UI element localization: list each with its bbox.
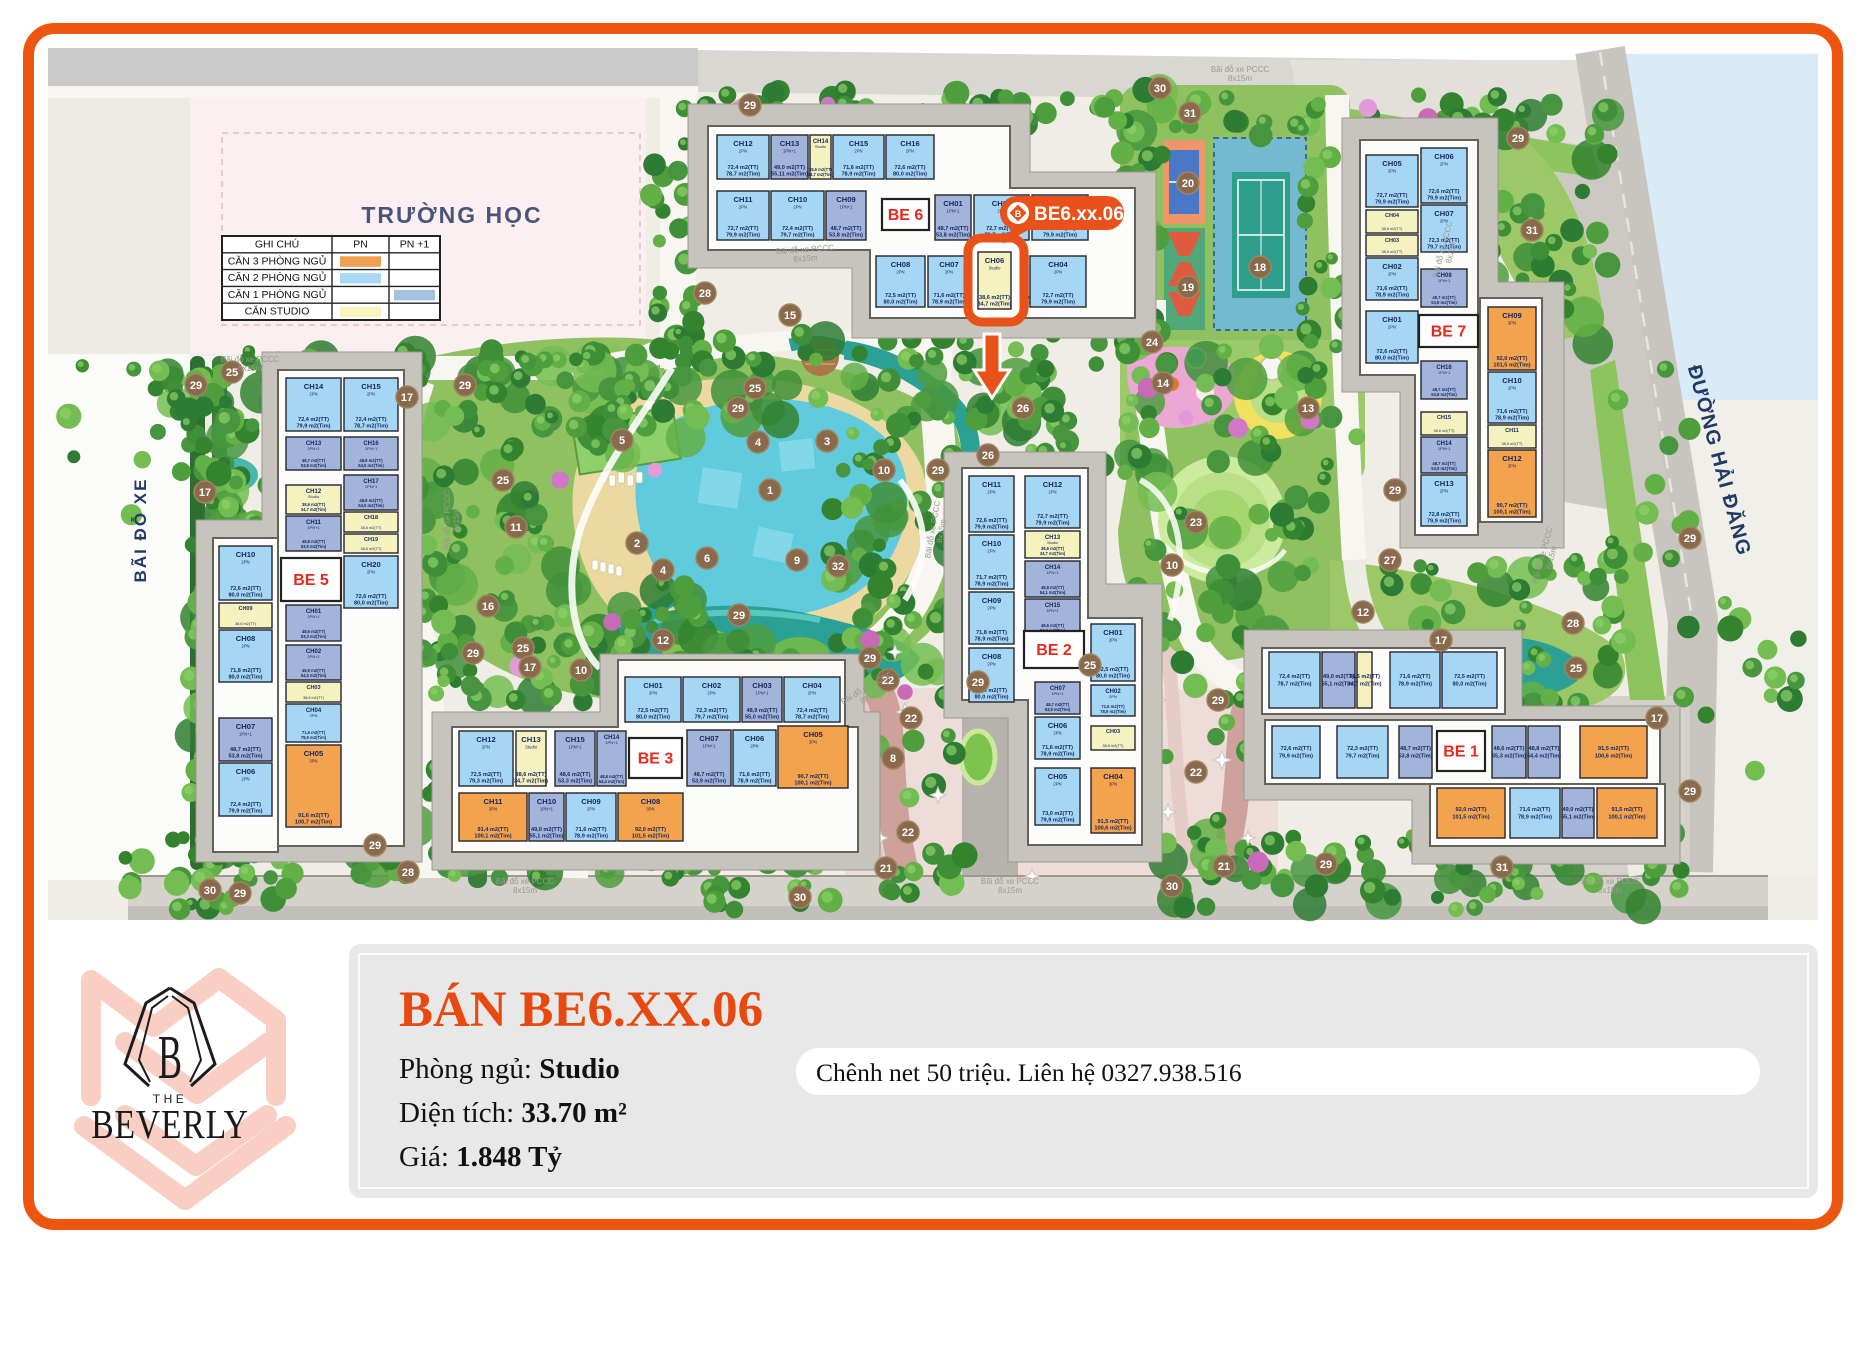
svg-text:CH13: CH13	[521, 735, 540, 744]
svg-text:79,9 m2(Tim): 79,9 m2(Tim)	[974, 525, 1008, 531]
svg-text:29: 29	[1684, 533, 1696, 545]
svg-text:29: 29	[744, 100, 756, 112]
svg-text:Bãi đỗ xe PCCC: Bãi đỗ xe PCCC	[443, 491, 452, 549]
svg-text:29: 29	[972, 677, 984, 689]
svg-text:CH12: CH12	[1502, 454, 1521, 463]
svg-text:BEVERLY: BEVERLY	[91, 1103, 248, 1148]
svg-text:100,6 m2(Tim): 100,6 m2(Tim)	[1595, 754, 1632, 760]
svg-text:72,6 m2(TT): 72,6 m2(TT)	[976, 518, 1007, 524]
svg-text:2PN: 2PN	[1109, 694, 1117, 699]
svg-text:72,4 m2(TT): 72,4 m2(TT)	[782, 226, 813, 232]
svg-text:5: 5	[619, 435, 625, 447]
svg-text:1PN+1: 1PN+1	[947, 209, 961, 214]
svg-text:92,0 m2(TT): 92,0 m2(TT)	[1496, 356, 1527, 362]
svg-text:78,9 m2(Tim): 78,9 m2(Tim)	[574, 834, 608, 840]
svg-text:PN +1: PN +1	[400, 239, 430, 251]
svg-text:80,0 m2(Tim): 80,0 m2(Tim)	[228, 593, 262, 599]
svg-text:34,7 m2(Tim): 34,7 m2(Tim)	[1040, 551, 1066, 556]
svg-text:Phòng ngủ: Studio: Phòng ngủ: Studio	[399, 1053, 620, 1085]
svg-text:34,7 m2(Tim): 34,7 m2(Tim)	[301, 507, 327, 512]
svg-text:CĂN 2 PHÒNG NGỦ: CĂN 2 PHÒNG NGỦ	[228, 271, 327, 284]
svg-text:CH05: CH05	[1382, 159, 1402, 168]
svg-text:49,0 m2(TT): 49,0 m2(TT)	[774, 165, 805, 171]
svg-text:34,7 m2(Tim): 34,7 m2(Tim)	[808, 172, 834, 177]
svg-text:2PN: 2PN	[1048, 490, 1056, 495]
svg-text:72,6 m2(TT): 72,6 m2(TT)	[230, 586, 261, 592]
svg-text:17: 17	[524, 662, 536, 674]
svg-text:2PN: 2PN	[1053, 782, 1061, 787]
svg-text:38,6 m2(TT): 38,6 m2(TT)	[1502, 442, 1524, 446]
svg-text:79,9 m2(Tim): 79,9 m2(Tim)	[1427, 519, 1461, 525]
svg-text:6: 6	[704, 553, 710, 565]
svg-text:21: 21	[1218, 861, 1230, 873]
svg-text:38,6 m2(TT): 38,6 m2(TT)	[1382, 227, 1404, 231]
svg-text:8x15m: 8x15m	[238, 364, 262, 373]
svg-text:29: 29	[1212, 695, 1224, 707]
svg-text:78,9 m2(Tim): 78,9 m2(Tim)	[1518, 815, 1552, 821]
svg-text:TRƯỜNG HỌC: TRƯỜNG HỌC	[361, 201, 542, 228]
svg-text:CH06: CH06	[1434, 152, 1453, 161]
svg-text:23: 23	[1190, 517, 1202, 529]
svg-text:72,5 m2(TT): 72,5 m2(TT)	[1454, 674, 1485, 680]
svg-text:8: 8	[890, 753, 896, 765]
svg-text:72,3 m2(TT): 72,3 m2(TT)	[696, 708, 727, 714]
svg-text:79,9 m2(Tim): 79,9 m2(Tim)	[228, 809, 262, 815]
svg-text:72,4 m2(TT): 72,4 m2(TT)	[355, 417, 386, 423]
svg-text:29: 29	[1389, 485, 1401, 497]
svg-text:71,6 m2(TT): 71,6 m2(TT)	[933, 293, 964, 299]
svg-text:29: 29	[733, 610, 745, 622]
svg-text:1PN+1: 1PN+1	[783, 149, 797, 154]
svg-text:48,6 m2(TT): 48,6 m2(TT)	[1493, 746, 1524, 752]
svg-text:38,6 m2(TT): 38,6 m2(TT)	[1349, 674, 1380, 680]
svg-text:53,3 m2(Tim): 53,3 m2(Tim)	[558, 779, 592, 785]
svg-text:71,7 m2(TT): 71,7 m2(TT)	[976, 575, 1007, 581]
svg-text:CH03: CH03	[752, 681, 771, 690]
svg-text:CH08: CH08	[236, 634, 255, 643]
svg-text:2PN: 2PN	[649, 691, 657, 696]
svg-text:1PN+1: 1PN+1	[1438, 370, 1451, 375]
svg-text:CH03: CH03	[1385, 238, 1399, 244]
svg-text:54,1 m2(Tim): 54,1 m2(Tim)	[1040, 590, 1066, 595]
svg-text:29: 29	[467, 648, 479, 660]
svg-text:54,5 m2(Tim): 54,5 m2(Tim)	[358, 463, 384, 468]
svg-text:3PN: 3PN	[489, 807, 497, 812]
svg-text:12: 12	[1357, 607, 1369, 619]
svg-text:CH01: CH01	[943, 199, 963, 208]
svg-text:38,6 m2(TT): 38,6 m2(TT)	[361, 526, 383, 530]
svg-text:72,7 m2(TT): 72,7 m2(TT)	[1037, 514, 1068, 520]
svg-text:101,5 m2(Tim): 101,5 m2(Tim)	[632, 834, 669, 840]
svg-text:92,0 m2(TT): 92,0 m2(TT)	[1455, 807, 1486, 813]
svg-text:25: 25	[497, 475, 509, 487]
svg-text:CH07: CH07	[699, 734, 718, 743]
svg-text:78,9 m2(Tim): 78,9 m2(Tim)	[1398, 682, 1432, 688]
svg-text:28: 28	[402, 867, 414, 879]
svg-text:29: 29	[864, 653, 876, 665]
svg-text:38,6 m2(TT): 38,6 m2(TT)	[1103, 744, 1125, 748]
svg-text:100,1 m2(Tim): 100,1 m2(Tim)	[1608, 815, 1645, 821]
svg-text:27: 27	[1384, 555, 1396, 567]
svg-text:31: 31	[1496, 862, 1508, 874]
svg-text:34,7 m2(Tim): 34,7 m2(Tim)	[977, 302, 1011, 308]
svg-text:80,0 m2(Tim): 80,0 m2(Tim)	[636, 715, 670, 721]
svg-text:72,5 m2(TT): 72,5 m2(TT)	[1097, 667, 1128, 673]
svg-text:CH04: CH04	[802, 681, 822, 690]
svg-text:78,9 m2(Tim): 78,9 m2(Tim)	[932, 300, 966, 306]
svg-text:8x15m: 8x15m	[452, 508, 461, 532]
svg-text:100,1 m2(Tim): 100,1 m2(Tim)	[1493, 510, 1530, 516]
svg-text:2PN: 2PN	[739, 149, 747, 154]
svg-text:2PN: 2PN	[987, 606, 995, 611]
svg-text:2PN: 2PN	[1053, 731, 1061, 736]
svg-text:22: 22	[902, 827, 914, 839]
svg-text:72,5 m2(TT): 72,5 m2(TT)	[637, 708, 668, 714]
svg-text:3PN: 3PN	[646, 807, 654, 812]
svg-text:72,4 m2(TT): 72,4 m2(TT)	[727, 165, 758, 171]
svg-text:CH09: CH09	[581, 797, 600, 806]
svg-text:CH04: CH04	[1048, 260, 1068, 269]
svg-text:79,9 m2(Tim): 79,9 m2(Tim)	[726, 233, 760, 239]
svg-text:80,0 m2(Tim): 80,0 m2(Tim)	[1375, 356, 1409, 362]
svg-text:Bãi đỗ xe PCCC: Bãi đỗ xe PCCC	[1211, 65, 1269, 74]
svg-text:29: 29	[234, 888, 246, 900]
svg-text:4: 4	[660, 565, 667, 577]
svg-text:2PN: 2PN	[896, 270, 904, 275]
svg-text:1PN+1: 1PN+1	[307, 525, 320, 530]
svg-text:CH10: CH10	[537, 797, 556, 806]
svg-text:CH13: CH13	[1434, 479, 1453, 488]
svg-text:CH06: CH06	[1048, 721, 1067, 730]
svg-text:CH07: CH07	[1434, 209, 1453, 218]
svg-text:72,6 m2(TT): 72,6 m2(TT)	[1428, 189, 1459, 195]
svg-text:72,6 m2(TT): 72,6 m2(TT)	[1280, 746, 1311, 752]
svg-text:71,6 m2(TT): 71,6 m2(TT)	[1519, 807, 1550, 813]
svg-text:1PN+1: 1PN+1	[1046, 570, 1059, 575]
svg-text:29: 29	[369, 840, 381, 852]
svg-text:78,9 m2(Tim): 78,9 m2(Tim)	[1375, 293, 1409, 299]
svg-text:2PN: 2PN	[309, 392, 317, 397]
svg-text:80,0 m2(Tim): 80,0 m2(Tim)	[1452, 682, 1486, 688]
svg-text:25: 25	[1084, 660, 1096, 672]
svg-text:48,7 m2(TT): 48,7 m2(TT)	[230, 747, 261, 753]
svg-text:22: 22	[905, 713, 917, 725]
svg-text:17: 17	[199, 487, 211, 499]
svg-text:28: 28	[699, 288, 711, 300]
svg-text:34,7 m2(Tim): 34,7 m2(Tim)	[1347, 682, 1381, 688]
svg-text:79,9 m2(Tim): 79,9 m2(Tim)	[1041, 300, 1075, 306]
svg-text:100,1 m2(Tim): 100,1 m2(Tim)	[794, 781, 831, 787]
svg-text:72,4 m2(TT): 72,4 m2(TT)	[1279, 674, 1310, 680]
svg-text:1PN+1: 1PN+1	[307, 614, 320, 619]
svg-text:90,7 m2(TT): 90,7 m2(TT)	[797, 774, 828, 780]
svg-text:79,7 m2(Tim): 79,7 m2(Tim)	[780, 233, 814, 239]
svg-text:Bãi đỗ xe PCCC: Bãi đỗ xe PCCC	[496, 877, 554, 886]
svg-text:CH05: CH05	[304, 749, 324, 758]
svg-text:79,9 m2(Tim): 79,9 m2(Tim)	[1035, 521, 1069, 527]
svg-text:BE 3: BE 3	[638, 751, 674, 768]
svg-text:CH10: CH10	[788, 195, 807, 204]
svg-text:8x15m: 8x15m	[1598, 886, 1622, 895]
svg-text:48,7 m2(TT): 48,7 m2(TT)	[937, 226, 968, 232]
svg-text:2PN: 2PN	[1508, 386, 1516, 391]
svg-text:CĂN 1 PHÒNG NGỦ: CĂN 1 PHÒNG NGỦ	[228, 288, 327, 301]
svg-text:CH09: CH09	[1502, 311, 1521, 320]
svg-text:72,7 m2(TT): 72,7 m2(TT)	[1376, 193, 1407, 199]
svg-text:29: 29	[932, 465, 944, 477]
svg-text:38,6 m2(TT): 38,6 m2(TT)	[361, 547, 383, 551]
svg-text:3PN: 3PN	[1109, 782, 1117, 787]
svg-text:CH08: CH08	[891, 260, 910, 269]
svg-text:78,9 m2(Tim): 78,9 m2(Tim)	[974, 637, 1008, 643]
svg-text:30: 30	[1154, 83, 1166, 95]
svg-text:55,3 m2(Tim): 55,3 m2(Tim)	[1492, 754, 1526, 760]
svg-text:1PN+1: 1PN+1	[1051, 691, 1064, 696]
svg-text:CH06: CH06	[985, 256, 1004, 265]
svg-text:25: 25	[749, 383, 761, 395]
svg-text:17: 17	[1435, 635, 1447, 647]
svg-text:1PN+1: 1PN+1	[756, 691, 770, 696]
svg-text:80,0 m2(Tim): 80,0 m2(Tim)	[1096, 674, 1130, 680]
svg-text:CH16: CH16	[900, 139, 919, 148]
svg-text:79,9 m2(Tim): 79,9 m2(Tim)	[1279, 754, 1313, 760]
svg-text:71,8 m2(TT): 71,8 m2(TT)	[230, 668, 261, 674]
svg-text:2PN: 2PN	[854, 149, 862, 154]
svg-text:4: 4	[755, 437, 762, 449]
svg-text:2PN: 2PN	[1109, 638, 1117, 643]
svg-text:22: 22	[1190, 767, 1202, 779]
svg-text:73,0 m2(TT): 73,0 m2(TT)	[1042, 811, 1073, 817]
svg-text:72,5 m2(TT): 72,5 m2(TT)	[470, 772, 501, 778]
svg-text:CH10: CH10	[1502, 376, 1521, 385]
svg-text:48,9 m2(TT): 48,9 m2(TT)	[746, 708, 777, 714]
svg-text:78,9 m2(Tim): 78,9 m2(Tim)	[974, 582, 1008, 588]
svg-text:2PN: 2PN	[987, 662, 995, 667]
svg-text:72,5 m2(TT): 72,5 m2(TT)	[885, 293, 916, 299]
svg-text:10: 10	[1166, 560, 1178, 572]
svg-text:BÃI ĐỖ XE: BÃI ĐỖ XE	[130, 478, 150, 583]
svg-text:GHI CHÚ: GHI CHÚ	[255, 238, 299, 251]
svg-text:2PN: 2PN	[367, 392, 375, 397]
svg-text:CH04: CH04	[1103, 772, 1123, 781]
svg-text:72,7 m2(TT): 72,7 m2(TT)	[1042, 293, 1073, 299]
svg-text:CH11: CH11	[734, 195, 754, 204]
svg-text:CH14: CH14	[304, 382, 324, 391]
svg-text:1: 1	[767, 485, 773, 497]
svg-text:79,9 m2(Tim): 79,9 m2(Tim)	[1040, 818, 1074, 824]
svg-text:80,0 m2(Tim): 80,0 m2(Tim)	[893, 172, 927, 178]
svg-text:2PN: 2PN	[310, 713, 318, 718]
svg-text:CH04: CH04	[1385, 213, 1400, 219]
svg-text:17: 17	[401, 392, 413, 404]
svg-text:79,7 m2(Tim): 79,7 m2(Tim)	[694, 715, 728, 721]
svg-text:2PN: 2PN	[482, 745, 490, 750]
svg-text:49,0 m2(TT): 49,0 m2(TT)	[531, 827, 562, 833]
svg-text:2PN: 2PN	[367, 570, 375, 575]
svg-text:48,8 m2(TT): 48,8 m2(TT)	[1528, 746, 1559, 752]
svg-text:79,7 m2(Tim): 79,7 m2(Tim)	[1345, 754, 1379, 760]
svg-text:CH02: CH02	[1382, 262, 1401, 271]
svg-text:91,5 m2(TT): 91,5 m2(TT)	[1097, 819, 1128, 825]
svg-text:1PN+1: 1PN+1	[1046, 608, 1059, 613]
svg-text:34,7 m2(Tim): 34,7 m2(Tim)	[514, 779, 548, 785]
svg-text:49,0 m2(TT): 49,0 m2(TT)	[1562, 807, 1593, 813]
svg-text:2PN: 2PN	[808, 691, 816, 696]
svg-text:2PN: 2PN	[739, 205, 747, 210]
svg-text:2PN: 2PN	[1440, 162, 1448, 167]
svg-text:CH20: CH20	[361, 560, 380, 569]
svg-text:38,6 m2(TT): 38,6 m2(TT)	[979, 295, 1010, 301]
svg-text:78,9 m2(Tim): 78,9 m2(Tim)	[1495, 416, 1529, 422]
svg-text:55,1 m2(Tim): 55,1 m2(Tim)	[529, 834, 563, 840]
svg-text:1PN+1: 1PN+1	[1438, 446, 1451, 451]
svg-text:71,6 m2(TT): 71,6 m2(TT)	[575, 827, 606, 833]
svg-text:26: 26	[982, 450, 994, 462]
svg-text:79,9 m2(Tim): 79,9 m2(Tim)	[1375, 200, 1409, 206]
svg-text:90,7 m2(TT): 90,7 m2(TT)	[1496, 503, 1527, 509]
svg-text:2PN: 2PN	[241, 777, 249, 782]
svg-text:53,8 m2(Tim): 53,8 m2(Tim)	[829, 233, 863, 239]
svg-text:BE 2: BE 2	[1036, 642, 1072, 659]
svg-text:71,6 m2(TT): 71,6 m2(TT)	[1496, 409, 1527, 415]
svg-text:2PN: 2PN	[707, 691, 715, 696]
svg-text:3PN: 3PN	[1508, 464, 1516, 469]
svg-text:2PN: 2PN	[987, 490, 995, 495]
svg-text:38,6 m2(TT): 38,6 m2(TT)	[515, 772, 546, 778]
svg-text:2: 2	[634, 538, 640, 550]
svg-text:2PN: 2PN	[587, 807, 595, 812]
svg-text:14: 14	[1157, 378, 1170, 390]
svg-text:54,5 m2(Tim): 54,5 m2(Tim)	[301, 673, 327, 678]
svg-text:78,7 m2(Tim): 78,7 m2(Tim)	[795, 715, 829, 721]
svg-text:CH05: CH05	[1048, 772, 1068, 781]
svg-text:54,4 m2(Tim): 54,4 m2(Tim)	[1527, 754, 1561, 760]
svg-text:BE6.xx.06: BE6.xx.06	[1034, 204, 1124, 225]
svg-text:30: 30	[794, 892, 806, 904]
svg-text:B: B	[158, 1023, 182, 1092]
svg-text:38,6 m2(TT): 38,6 m2(TT)	[1382, 250, 1404, 254]
svg-text:CH18: CH18	[364, 515, 378, 521]
svg-text:25: 25	[1570, 663, 1582, 675]
svg-text:72,6 m2(TT): 72,6 m2(TT)	[355, 594, 386, 600]
svg-text:3PN: 3PN	[809, 740, 817, 745]
svg-text:28: 28	[1567, 618, 1579, 630]
svg-text:100,7 m2(Tim): 100,7 m2(Tim)	[295, 820, 332, 826]
svg-text:38,6 m2(TT): 38,6 m2(TT)	[1434, 429, 1456, 433]
svg-text:2PN: 2PN	[1054, 270, 1062, 275]
svg-text:20: 20	[1182, 178, 1194, 190]
svg-text:78,7 m2(Tim): 78,7 m2(Tim)	[1277, 682, 1311, 688]
svg-text:53,9 m2(Tim): 53,9 m2(Tim)	[1045, 707, 1071, 712]
svg-text:BÁN BE6.XX.06: BÁN BE6.XX.06	[399, 982, 763, 1038]
svg-text:2PN: 2PN	[906, 149, 914, 154]
svg-text:Bãi đỗ xe PCCC: Bãi đỗ xe PCCC	[221, 355, 279, 364]
svg-text:CH15: CH15	[849, 139, 869, 148]
svg-text:3PN: 3PN	[309, 759, 317, 764]
svg-text:54,5 m2(Tim): 54,5 m2(Tim)	[358, 503, 384, 508]
svg-text:54,4 m2(Tim): 54,4 m2(Tim)	[599, 779, 625, 784]
svg-text:CH07: CH07	[939, 260, 958, 269]
svg-text:71,8 m2(TT): 71,8 m2(TT)	[976, 630, 1007, 636]
svg-text:78,9 m2(Tim): 78,9 m2(Tim)	[1100, 709, 1126, 714]
svg-text:92,0 m2(TT): 92,0 m2(TT)	[635, 827, 666, 833]
svg-text:Giá: 1.848 Tỷ: Giá: 1.848 Tỷ	[399, 1141, 563, 1173]
svg-text:71,6 m2(TT): 71,6 m2(TT)	[843, 165, 874, 171]
svg-text:CĂN STUDIO: CĂN STUDIO	[245, 305, 310, 318]
svg-text:2PN: 2PN	[750, 744, 758, 749]
svg-text:71,6 m2(TT): 71,6 m2(TT)	[1376, 286, 1407, 292]
svg-text:CH09: CH09	[836, 195, 855, 204]
svg-text:53,8 m2(Tim): 53,8 m2(Tim)	[1431, 392, 1457, 397]
svg-text:BE 7: BE 7	[1431, 324, 1467, 341]
svg-text:78,7 m2(Tim): 78,7 m2(Tim)	[726, 172, 760, 178]
svg-text:B: B	[1015, 209, 1022, 219]
svg-text:17: 17	[1651, 713, 1663, 725]
svg-text:Chênh net 50 triệu. Liên hệ 03: Chênh net 50 triệu. Liên hệ 0327.938.516	[816, 1058, 1242, 1087]
svg-text:CH08: CH08	[982, 652, 1001, 661]
svg-text:1PN+1: 1PN+1	[239, 732, 253, 737]
svg-text:1PN+1: 1PN+1	[703, 744, 717, 749]
svg-text:78,9 m2(Tim): 78,9 m2(Tim)	[1040, 752, 1074, 758]
svg-text:Diện tích: 33.70 m²: Diện tích: 33.70 m²	[399, 1097, 627, 1129]
svg-text:29: 29	[459, 380, 471, 392]
svg-text:2PN: 2PN	[241, 644, 249, 649]
svg-text:80,0 m2(Tim): 80,0 m2(Tim)	[228, 675, 262, 681]
svg-text:21: 21	[880, 863, 892, 875]
svg-text:2PN: 2PN	[1388, 169, 1396, 174]
svg-text:80,0 m2(Tim): 80,0 m2(Tim)	[974, 695, 1008, 701]
svg-text:11: 11	[510, 522, 522, 534]
svg-text:Studio: Studio	[308, 494, 320, 499]
svg-text:79,9 m2(Tim): 79,9 m2(Tim)	[1427, 196, 1461, 202]
svg-text:80,0 m2(Tim): 80,0 m2(Tim)	[883, 300, 917, 306]
svg-text:2PN: 2PN	[1440, 489, 1448, 494]
svg-text:80,0 m2(Tim): 80,0 m2(Tim)	[354, 601, 388, 607]
svg-text:29: 29	[190, 380, 202, 392]
svg-text:72,4 m2(TT): 72,4 m2(TT)	[796, 708, 827, 714]
svg-text:38,6 m2(TT): 38,6 m2(TT)	[235, 622, 257, 626]
svg-text:CH13: CH13	[780, 139, 799, 148]
svg-text:78,9 m2(Tim): 78,9 m2(Tim)	[841, 172, 875, 178]
svg-text:78,7 m2(Tim): 78,7 m2(Tim)	[354, 424, 388, 430]
svg-text:91,6 m2(TT): 91,6 m2(TT)	[298, 813, 329, 819]
svg-text:53,3 m2(Tim): 53,3 m2(Tim)	[301, 634, 327, 639]
svg-text:Bãi đỗ xe PCCC: Bãi đỗ xe PCCC	[981, 877, 1039, 886]
svg-text:72,4 m2(TT): 72,4 m2(TT)	[298, 417, 329, 423]
svg-text:1PN+1: 1PN+1	[569, 745, 583, 750]
svg-text:CH06: CH06	[745, 734, 764, 743]
svg-text:BE 1: BE 1	[1443, 744, 1479, 761]
svg-text:CH03: CH03	[1106, 729, 1120, 735]
svg-text:PN: PN	[353, 239, 368, 251]
svg-text:53,9 m2(Tim): 53,9 m2(Tim)	[1431, 466, 1457, 471]
svg-text:10: 10	[575, 665, 587, 677]
svg-text:Studio: Studio	[1047, 540, 1059, 545]
svg-text:71,6 m2(TT): 71,6 m2(TT)	[1042, 745, 1073, 751]
svg-text:8x15m: 8x15m	[1228, 74, 1252, 83]
svg-text:48,7 m2(TT): 48,7 m2(TT)	[693, 772, 724, 778]
svg-text:CĂN 3 PHÒNG NGỦ: CĂN 3 PHÒNG NGỦ	[228, 254, 327, 267]
svg-text:55,0 m2(Tim): 55,0 m2(Tim)	[745, 715, 779, 721]
svg-text:10: 10	[878, 465, 890, 477]
svg-text:72,7 m2(TT): 72,7 m2(TT)	[727, 226, 758, 232]
svg-text:1PN+1: 1PN+1	[365, 446, 378, 451]
svg-text:1PN+1: 1PN+1	[605, 740, 618, 745]
svg-text:31: 31	[1526, 225, 1538, 237]
svg-text:3: 3	[824, 436, 830, 448]
svg-text:53,8 m2(Tim): 53,8 m2(Tim)	[301, 463, 327, 468]
svg-text:CH10: CH10	[982, 539, 1001, 548]
